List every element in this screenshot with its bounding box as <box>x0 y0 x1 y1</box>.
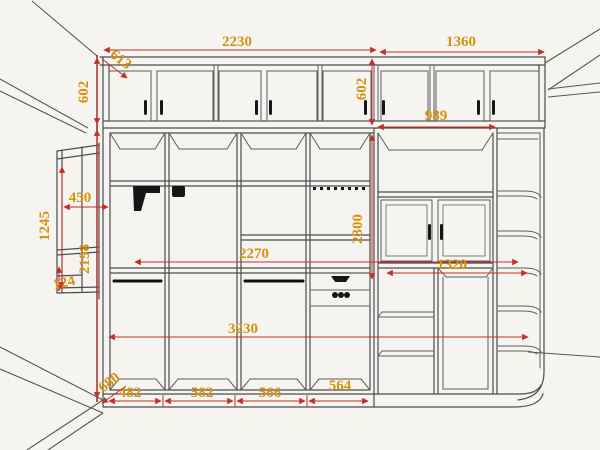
elevation-svg: 2230 1360 613 602 602 989 1245 450 2198 … <box>0 0 600 450</box>
dim-overall-width: 3230 <box>228 321 258 337</box>
cabinet-door <box>219 71 261 121</box>
drawer-stack <box>310 273 370 306</box>
column-top-perspective <box>110 133 370 149</box>
dim-side-unit-bottom: 124 <box>51 273 77 294</box>
dim-column-width-3: 566 <box>259 385 282 401</box>
dim-column-width-2: 582 <box>191 385 214 401</box>
dim-right-body-height: 2300 <box>350 214 366 244</box>
dim-upper-height-right: 602 <box>354 78 370 101</box>
cabinet-door <box>438 200 490 261</box>
cabinet-door <box>157 71 213 121</box>
drawer-handle <box>332 292 338 298</box>
dim-top-right-width: 1360 <box>446 34 476 50</box>
upper-cabinets <box>100 57 545 128</box>
door-handle <box>428 224 431 240</box>
lift-hanger-bracket <box>133 186 160 211</box>
cabinet-door <box>267 71 317 121</box>
corner-shelf-column <box>497 128 544 400</box>
dim-top-depth: 613 <box>107 47 135 73</box>
cabinet-door <box>381 200 432 261</box>
dim-left-body-height: 2198 <box>77 244 93 274</box>
cabinet-door <box>490 71 539 121</box>
dim-column-width-4: 564 <box>329 378 352 394</box>
dim-right-section-width: 1320 <box>437 257 467 273</box>
dim-top-left-width: 2230 <box>222 34 252 50</box>
dim-side-unit-width: 450 <box>69 190 92 206</box>
rod-end-block <box>172 186 185 197</box>
wardrobe-body <box>103 128 374 407</box>
drawer-handle <box>331 276 350 282</box>
dim-upper-right-width: 989 <box>425 108 448 124</box>
dim-interior-width: 2270 <box>239 246 269 262</box>
dimension-lines <box>59 50 544 407</box>
dim-upper-height-left: 602 <box>76 81 92 104</box>
dim-column-width-1: 482 <box>119 385 142 401</box>
cabinet-door <box>381 71 428 121</box>
tie-rack <box>313 187 365 190</box>
dim-side-unit-height: 1245 <box>37 211 53 241</box>
door-handle <box>440 224 443 240</box>
wardrobe-cad-drawing: 2230 1360 613 602 602 989 1245 450 2198 … <box>0 0 600 450</box>
